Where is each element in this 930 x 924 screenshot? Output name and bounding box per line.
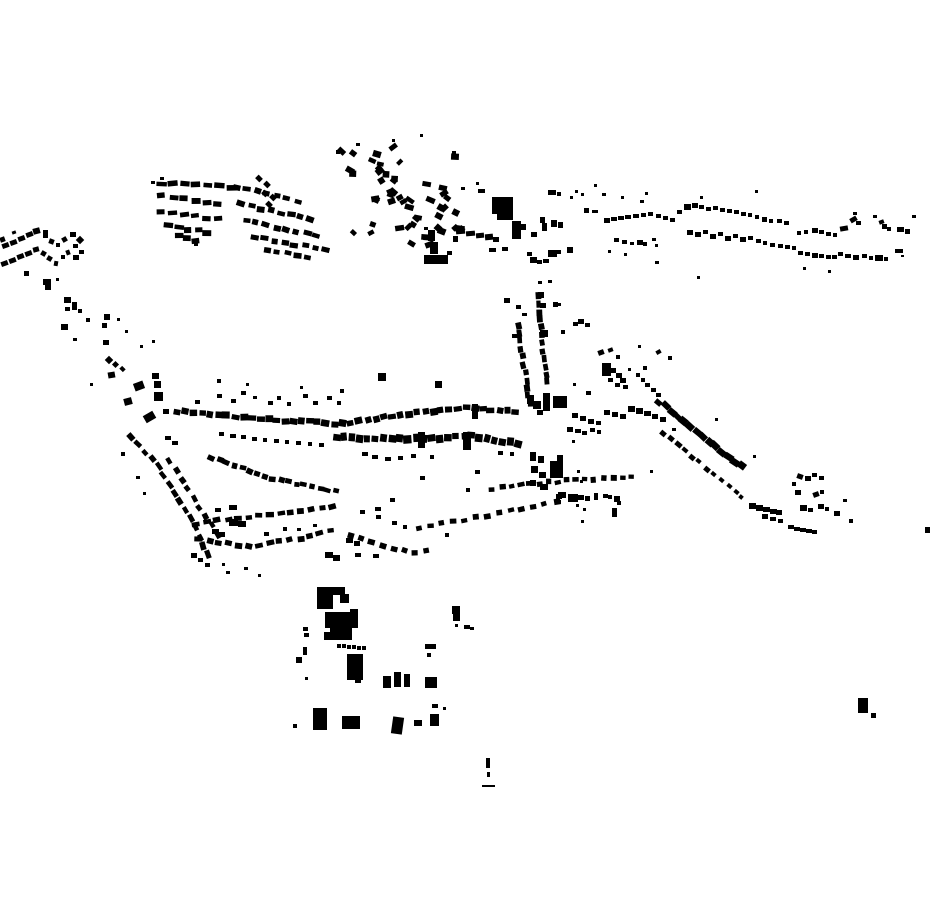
building-footprint-map xyxy=(0,0,930,924)
map-viewport xyxy=(0,0,930,924)
